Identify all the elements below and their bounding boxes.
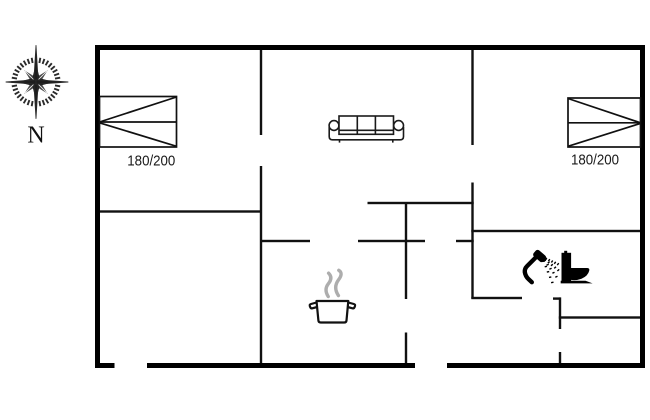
svg-text:180/200: 180/200 xyxy=(127,153,175,170)
svg-text:180/200: 180/200 xyxy=(571,152,619,169)
svg-text:N: N xyxy=(27,123,44,149)
